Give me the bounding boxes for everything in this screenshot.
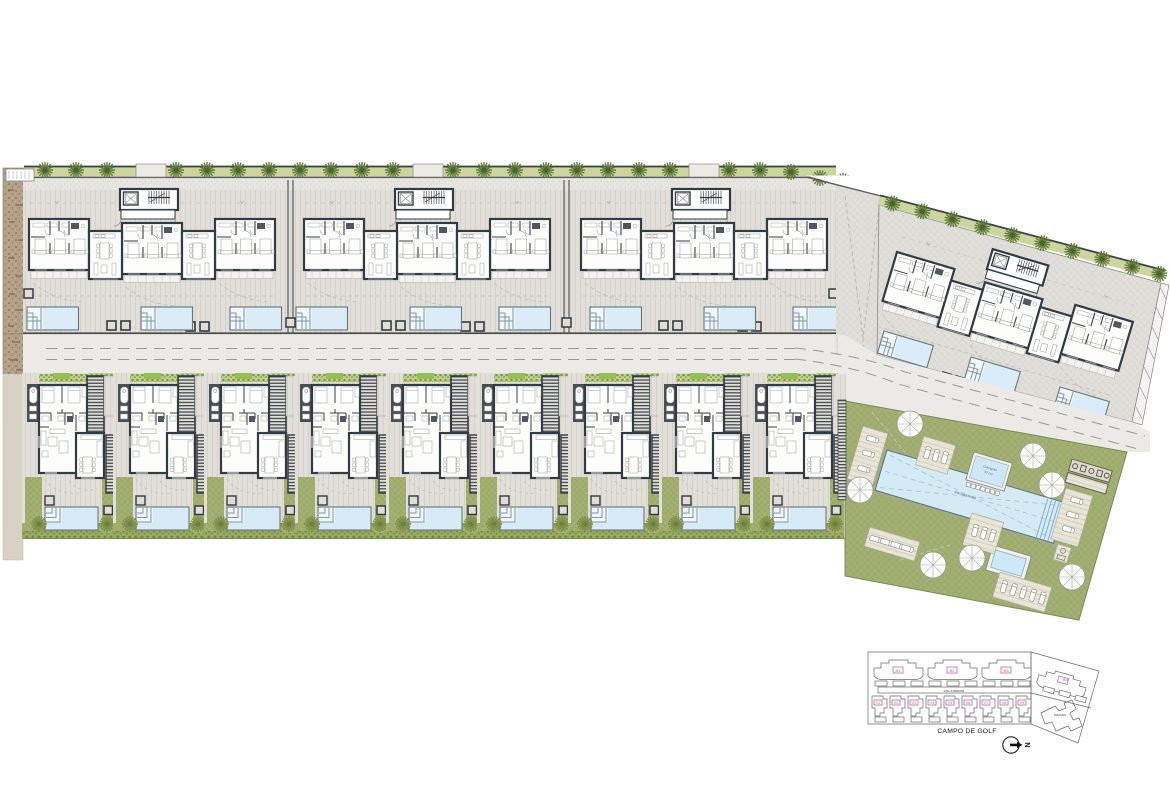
svg-text:V7: V7 — [984, 701, 988, 705]
svg-text:B3: B3 — [1004, 668, 1010, 673]
svg-text:V4: V4 — [930, 701, 934, 705]
svg-text:V5: V5 — [948, 701, 952, 705]
svg-text:V3: V3 — [912, 701, 916, 705]
svg-text:B2: B2 — [950, 668, 956, 673]
svg-text:V8: V8 — [1002, 701, 1006, 705]
svg-text:CAMPO DE GOLF: CAMPO DE GOLF — [937, 728, 996, 735]
svg-text:PISCINA: PISCINA — [1054, 713, 1067, 717]
svg-text:N: N — [1023, 742, 1032, 747]
svg-text:B1: B1 — [896, 668, 902, 673]
svg-text:V6: V6 — [966, 701, 970, 705]
svg-text:V9: V9 — [1020, 701, 1024, 705]
svg-text:V1: V1 — [876, 701, 880, 705]
svg-text:V2: V2 — [894, 701, 898, 705]
svg-text:VIAL INTERIOR: VIAL INTERIOR — [944, 689, 965, 693]
